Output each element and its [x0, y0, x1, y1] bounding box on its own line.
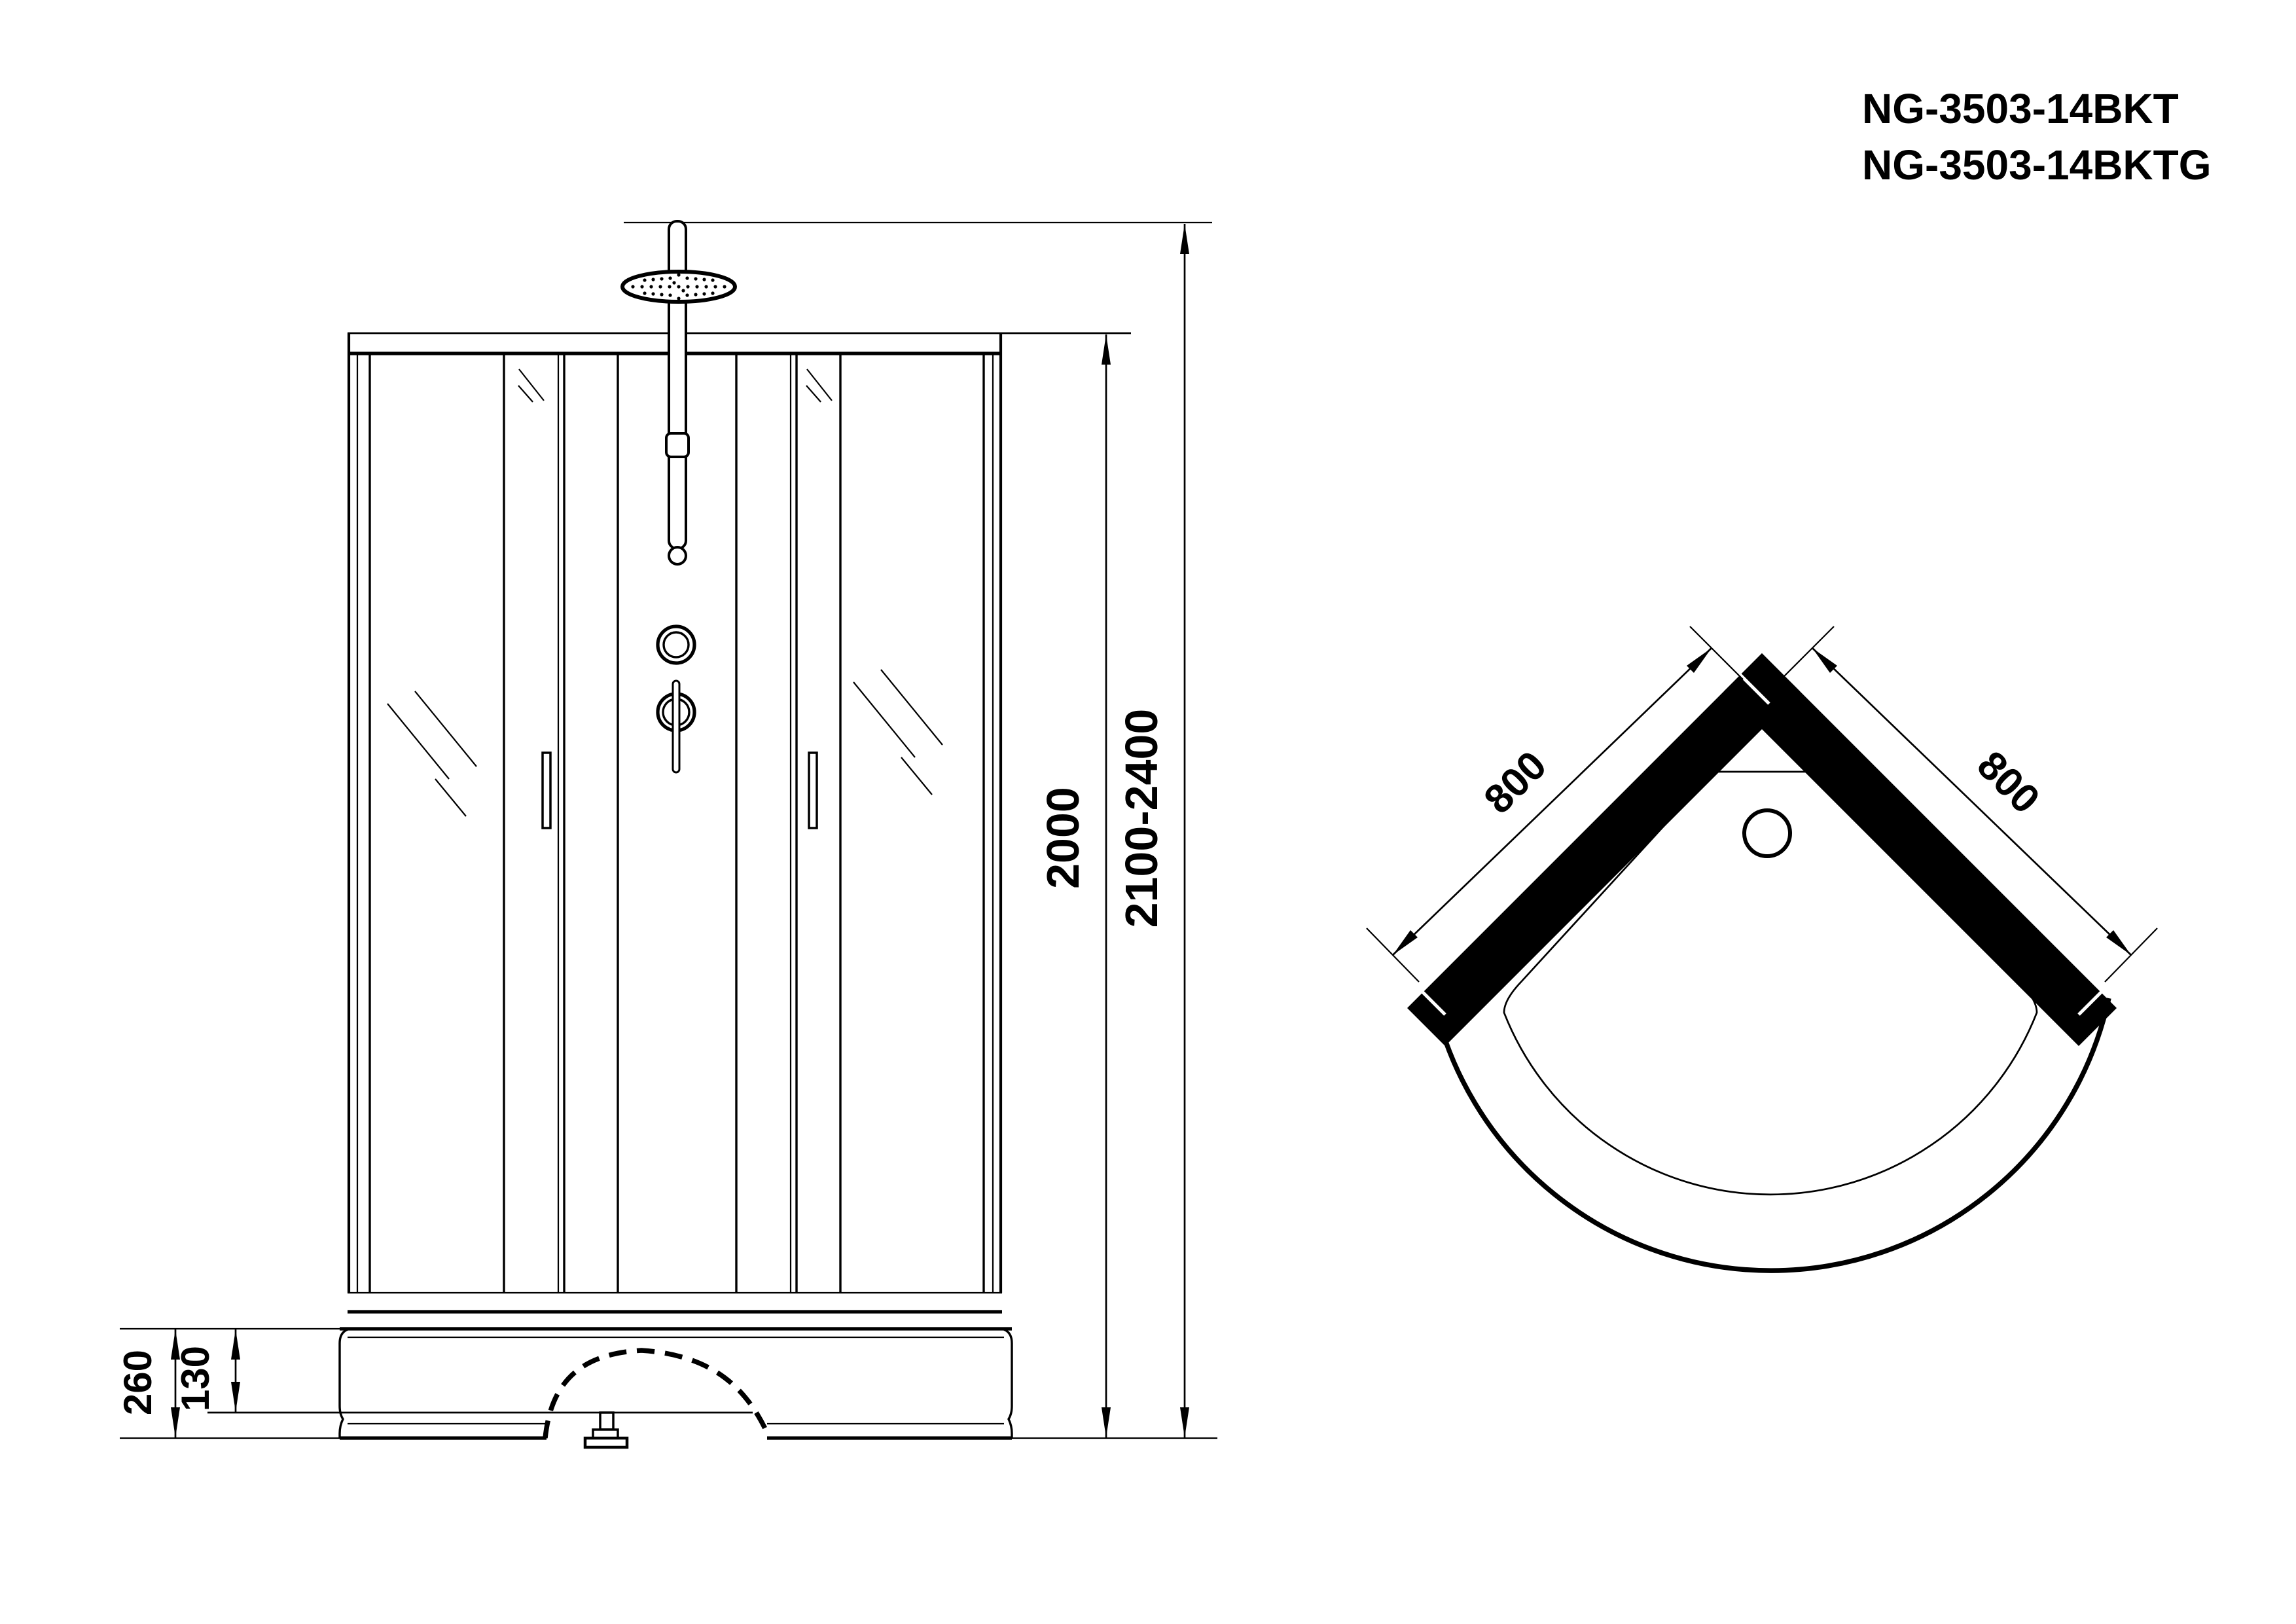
drain-access-arch-dashed	[545, 1350, 768, 1438]
arrow-up-icon	[231, 1329, 240, 1360]
dimension-cabin-height: 2000	[1037, 787, 1088, 889]
back-wall-left	[1407, 653, 1800, 1046]
dimension-overall-height: 2100-2400	[1116, 709, 1167, 928]
arrow-down-icon	[231, 1382, 240, 1412]
arrow-up-right-icon	[1687, 648, 1712, 673]
door-handle-right	[809, 753, 817, 828]
arrow-up-icon	[1180, 224, 1189, 254]
dimension-tray-inner-depth: 130	[173, 1346, 217, 1411]
arrow-down-right-icon	[2106, 930, 2131, 955]
tray-right-edge	[1004, 1329, 1012, 1437]
mixer-lever	[673, 681, 679, 772]
drawing-sheet: 260 130 2000 2100-2400	[0, 0, 2296, 1624]
shower-tray-front	[120, 1329, 1217, 1447]
front-view: 260 130 2000 2100-2400	[116, 221, 1217, 1447]
arrow-up-icon	[1102, 334, 1111, 365]
arrow-down-icon	[1180, 1407, 1189, 1437]
adjustable-foot	[585, 1413, 627, 1447]
arrow-down-left-icon	[1393, 930, 1418, 955]
shower-cabin-diagram: 260 130 2000 2100-2400	[0, 0, 2296, 1624]
height-dimensions: 2000 2100-2400	[1037, 224, 1189, 1437]
door-handle-left	[543, 753, 550, 828]
model-title: NG-3503-14BKT NG-3503-14BKTG	[1862, 85, 2212, 189]
model-number-line1: NG-3503-14BKT	[1862, 85, 2179, 132]
tray-height-dimensions: 260 130	[116, 1329, 240, 1437]
slider-bracket	[666, 433, 689, 457]
diverter-with-lever	[658, 681, 694, 772]
top-view: 800 800	[1367, 626, 2157, 1271]
drain-hole	[1744, 810, 1790, 856]
model-number-line2: NG-3503-14BKTG	[1862, 141, 2212, 189]
tray-left-edge	[340, 1329, 348, 1437]
bottom-rail	[348, 1293, 1002, 1312]
mixer-valve	[658, 626, 694, 663]
hand-shower-holder	[669, 547, 686, 564]
dimension-tray-height: 260	[116, 1350, 160, 1415]
arrow-down-icon	[1102, 1407, 1111, 1437]
glass-shine-marks	[387, 369, 942, 816]
arrow-up-left-icon	[1812, 648, 1837, 673]
shower-column	[622, 221, 735, 772]
tray-front-arc	[1433, 998, 2109, 1271]
